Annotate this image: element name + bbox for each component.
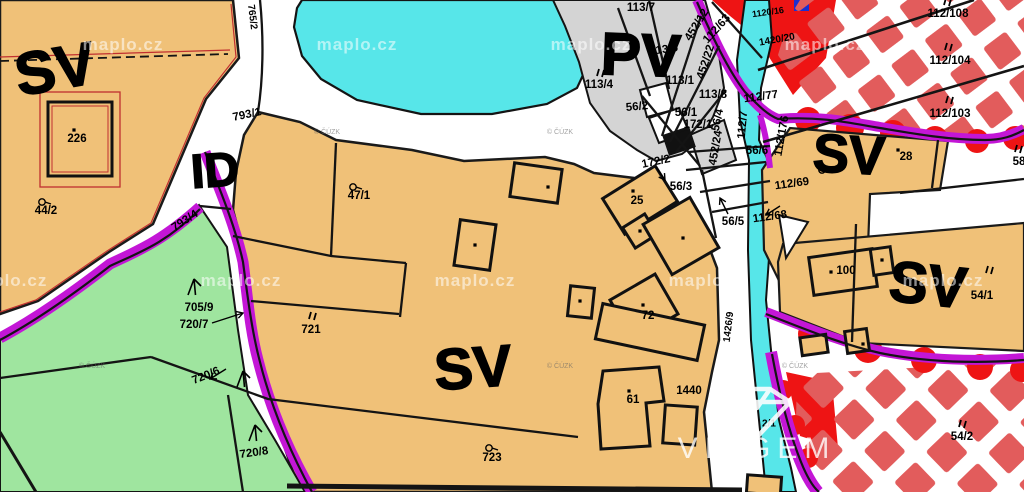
parcel-label: 1440 (676, 385, 702, 397)
parcel-label: 172/1 (684, 119, 713, 131)
building-dot (829, 270, 832, 273)
parcel-label: 723 (482, 452, 501, 464)
building-dot (896, 148, 899, 151)
parcel-label: 112/103 (930, 108, 971, 120)
building-dot (880, 258, 883, 261)
zone-label: SV (432, 333, 514, 403)
attribution-text: © ČÚZK (79, 361, 105, 370)
cadastral-map: SVIDPVSVSVSV765/2793/122644/2793/4705/97… (0, 0, 1024, 492)
parcel-label: 56/1 (675, 107, 698, 119)
attribution-text: © ČÚZK (314, 127, 340, 136)
parcel-label: 56/3 (670, 181, 692, 193)
watermark-text: maplo.cz (0, 271, 47, 290)
attribution-text: © ČÚZK (782, 361, 808, 370)
parcel-label: 721 (301, 324, 321, 336)
watermark-text: maplo.cz (201, 271, 282, 290)
attribution-text: © ČÚZK (547, 127, 573, 136)
parcel-label: 112/7 (736, 110, 750, 139)
parcel-label: 100 (836, 265, 855, 277)
watermark-text: maplo.cz (435, 271, 516, 290)
viagem-wordmark: VIAGEM (678, 432, 837, 465)
watermark-text: maplo.cz (669, 271, 750, 290)
watermark-text: maplo.cz (83, 35, 164, 54)
building-dot (473, 243, 476, 246)
zone-label: ID (189, 143, 241, 199)
attribution-text: © ČÚZK (547, 361, 573, 370)
building-dot (546, 185, 549, 188)
building-dot (627, 389, 630, 392)
building-dot (72, 128, 75, 131)
parcel-label: 113/8 (699, 89, 728, 101)
parcel-label: 54/1 (971, 290, 994, 302)
building-dot (578, 299, 581, 302)
watermark-text: maplo.cz (903, 271, 984, 290)
parcel-label: 72 (642, 310, 655, 322)
zone-label: SV (811, 123, 886, 187)
parcel-label: 28 (900, 151, 913, 163)
parcel-label: 113/1 (666, 75, 695, 87)
parcel-label: 56/6 (746, 145, 768, 157)
building-dot (631, 189, 634, 192)
checker-zone-bottom-right (796, 362, 1024, 492)
parcel-label: 54/2 (951, 431, 973, 443)
parcel-label: 113/4 (585, 79, 614, 91)
parcel-label: 113/7 (627, 2, 655, 14)
parcel-label: 56/2 (625, 100, 648, 114)
watermark-text: maplo.cz (785, 35, 866, 54)
building-dot (641, 303, 644, 306)
watermark-text: maplo.cz (551, 35, 632, 54)
parcel-label: 705/9 (185, 302, 214, 314)
parcel-label: 112/108 (928, 8, 970, 20)
parcel-label: 112/104 (930, 55, 972, 67)
building-dot (681, 236, 684, 239)
parcel-label: 61 (627, 394, 640, 406)
map-viewport[interactable]: SVIDPVSVSVSV765/2793/122644/2793/4705/97… (0, 0, 1024, 492)
building-dot (861, 342, 864, 345)
parcel-label: 58 (1013, 156, 1024, 168)
building-dot (638, 229, 641, 232)
parcel-label: 720/7 (180, 319, 209, 331)
watermark-text: maplo.cz (317, 35, 398, 54)
parcel-label: 56/5 (722, 216, 745, 228)
parcel-label: 47/1 (348, 190, 371, 202)
parcel-label: 226 (67, 133, 86, 145)
parcel-label: 44/2 (35, 205, 57, 217)
parcel-label: 25 (631, 195, 644, 207)
